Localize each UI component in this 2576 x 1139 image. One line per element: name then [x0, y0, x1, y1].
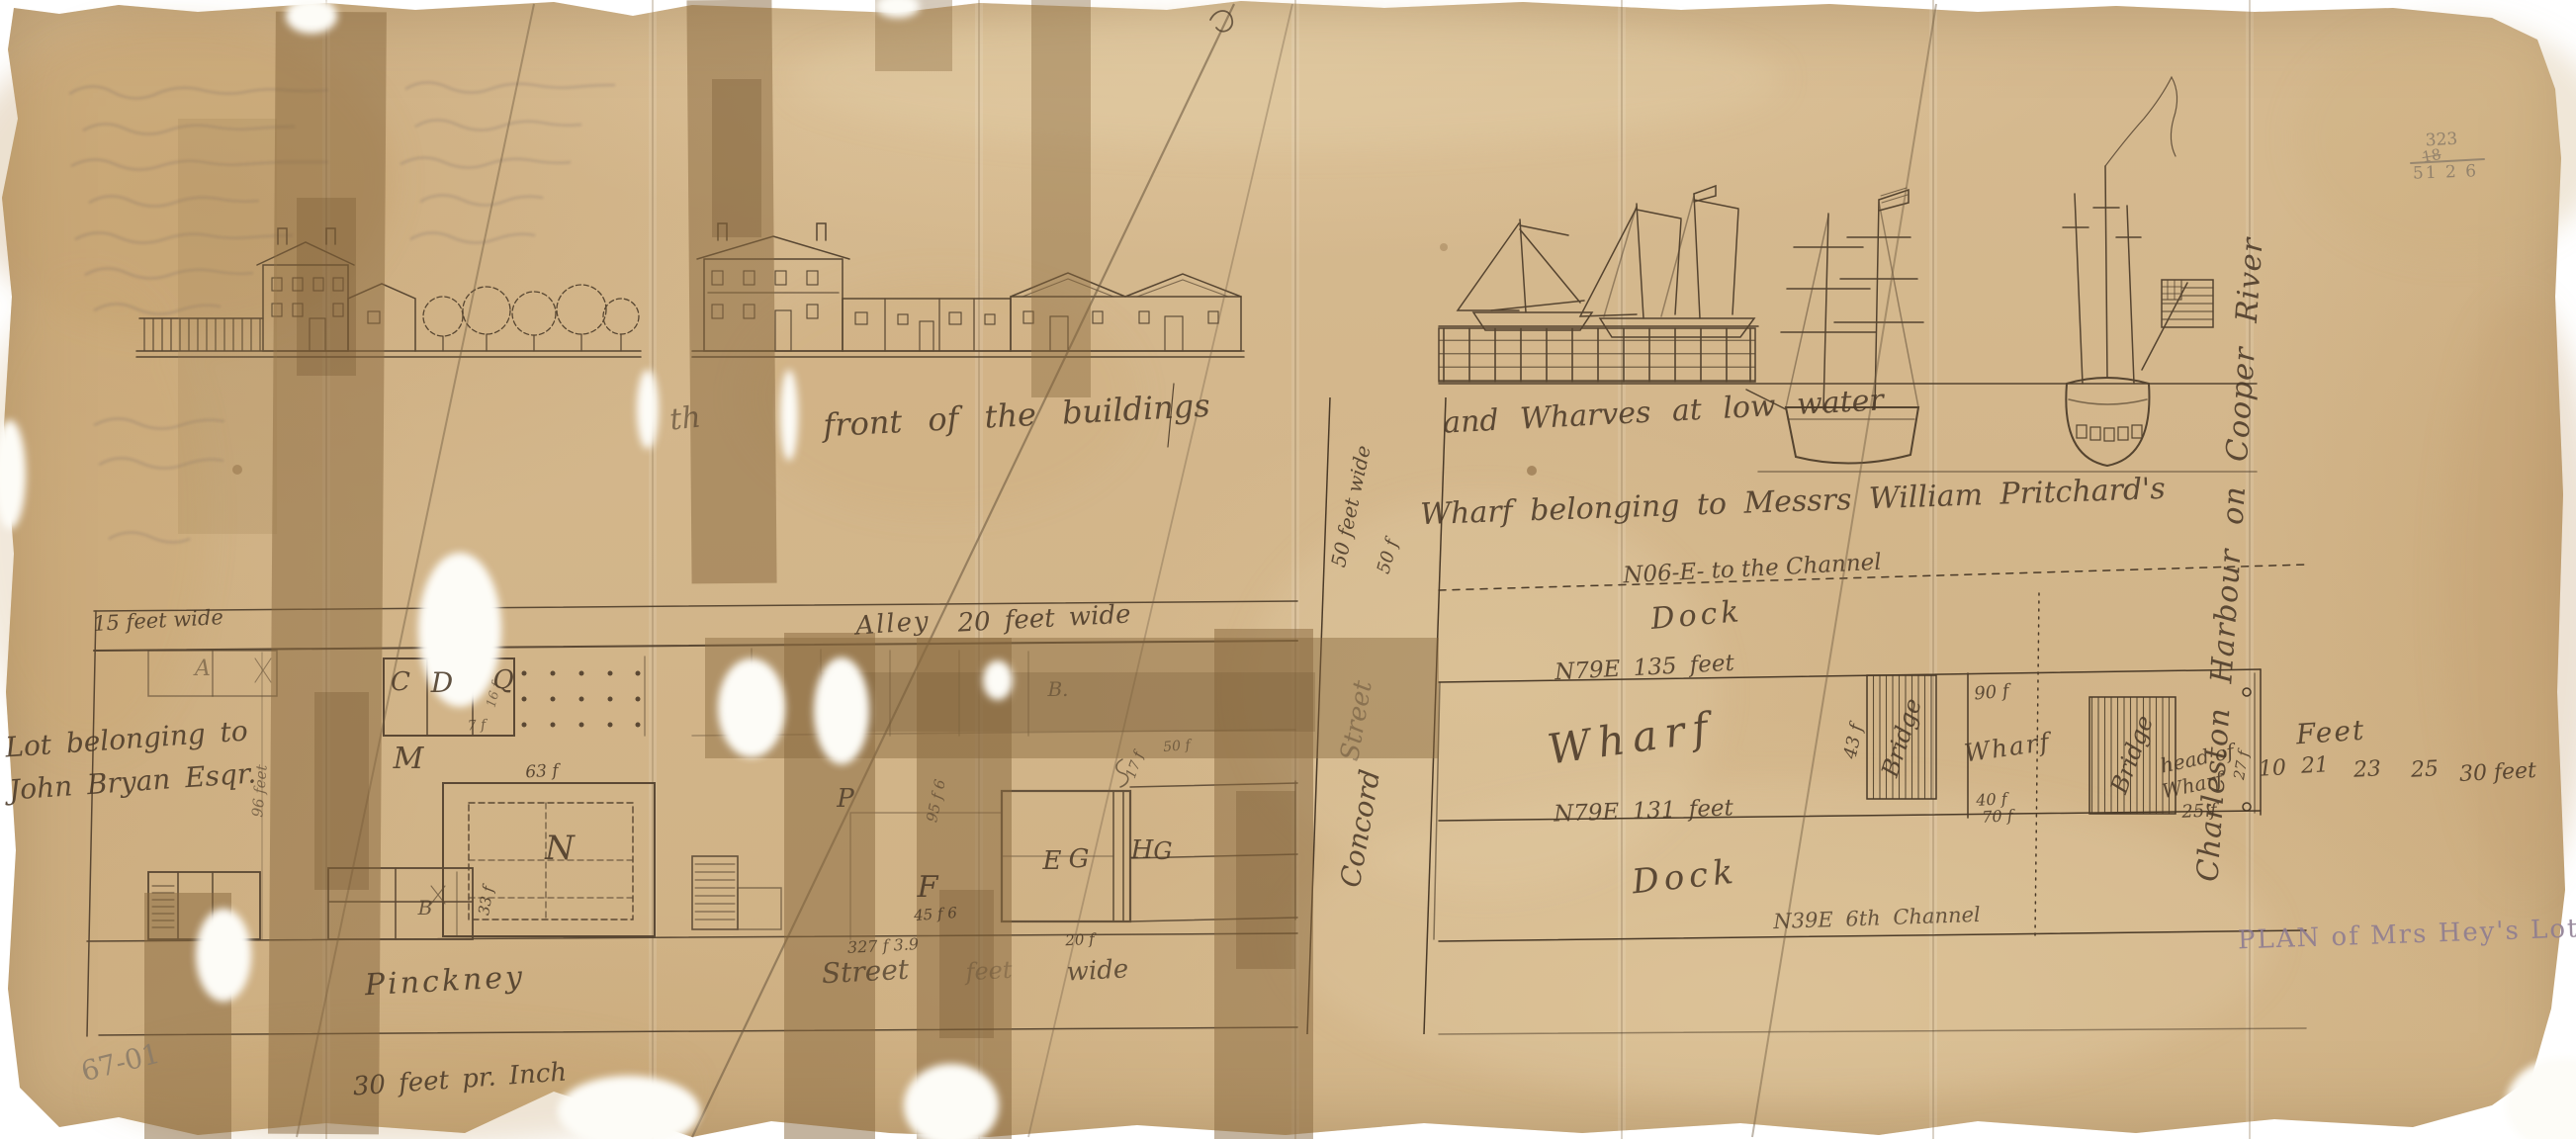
channel-bearing-upper: N06-E- to the Channel [1623, 552, 1882, 588]
scale-tick-21: 21 [2300, 754, 2329, 777]
wharf-label-2: Wharf [1963, 730, 2053, 766]
dim-20f: 20 f [1065, 932, 1095, 949]
dim-50f: 50 f [1375, 538, 1401, 576]
street-wide-word: wide [1066, 956, 1129, 985]
scanned-plan-document: thfront of the buildingsand Wharves at l… [0, 0, 2576, 1139]
room-letter-c: C [391, 669, 410, 695]
dim-43f: 43 f [1842, 723, 1867, 760]
room-letter-d: D [431, 669, 453, 697]
harbour-title: Charleston Harbour on Cooper River [2193, 236, 2267, 883]
dim-16f: 16 f [485, 681, 503, 709]
concord-street-word: Street [1337, 678, 1377, 762]
bridge-label-2: Bridge [2107, 713, 2158, 797]
dim-27f: 27 f [2232, 749, 2252, 781]
archive-number: 67-01 [78, 1040, 162, 1087]
concord-street-width: 50 feet wide [1328, 444, 1374, 569]
street-word: Street [821, 956, 910, 989]
alley-name: Alley [854, 608, 931, 639]
dim-327f: 327 f 3.9 [847, 936, 920, 956]
dim-7f: 7 f [467, 719, 486, 734]
elevation-caption: front of the buildings [823, 390, 1211, 441]
dock-label-upper: Dock [1649, 597, 1743, 635]
dim-45f6: 45 f 6 [914, 906, 958, 923]
dim-96f: 96 feet [250, 764, 270, 818]
sheet-title: PLAN of Mrs Hey's Lot , [2238, 916, 2576, 954]
wharf-boundary-lower: N79E 131 feet [1554, 797, 1733, 826]
map-scale-note: 30 feet pr. Inch [352, 1059, 568, 1099]
room-letter-g2: G [1153, 839, 1172, 863]
scale-tick-23: 23 [2353, 758, 2381, 781]
alley-width: 20 feet wide [957, 601, 1131, 636]
wharf-label-1: Wharf [1545, 706, 1718, 770]
room-letter-b: B [418, 898, 433, 918]
room-letter-p: P [837, 786, 854, 812]
lot-owner-line1: Lot belonging to [4, 717, 248, 761]
channel-bearing-lower: N39E 6th Channel [1773, 905, 1981, 932]
elevation-caption-fragment: th [668, 402, 702, 435]
dim-50f-2: 50 f [1163, 739, 1192, 754]
passage-width: 15 feet wide [93, 607, 224, 635]
room-letter-f: F [918, 873, 938, 903]
dim-63f: 63 f [525, 763, 559, 782]
bridge-label-1: Bridge [1878, 695, 1925, 779]
dim-33f: 33 f [477, 885, 496, 917]
lot-owner-line2: John Bryan Esqr. [8, 759, 257, 804]
room-letter-m: M [394, 745, 424, 774]
dock-label-lower: Dock [1631, 854, 1739, 899]
pencil-sum-line3: 51 2 6 [2413, 163, 2479, 182]
scale-title: Feet [2295, 717, 2366, 749]
dim-17f: 17 f [1124, 750, 1147, 781]
room-letter-n: N [545, 832, 575, 865]
scale-tick-25: 25 [2410, 758, 2439, 781]
wharf-owner-caption: Wharf belonging to Messrs William Pritch… [1420, 475, 2167, 530]
wharf-boundary-upper: N79E 135 feet [1554, 653, 1735, 684]
room-letter-b2: B. [1047, 679, 1068, 699]
scale-tick-10: 10 [2258, 757, 2286, 780]
scale-tick-30: 30 feet [2458, 760, 2536, 786]
handwritten-labels-layer: thfront of the buildingsand Wharves at l… [0, 0, 2576, 1139]
concord-street-name: Concord [1337, 767, 1384, 889]
dim-95f6: 95 f 6 [925, 778, 948, 824]
pinckney-street-name: Pinckney [364, 963, 525, 1001]
dim-90f: 90 f [1974, 682, 2010, 703]
wharves-caption: and Wharves at low water [1443, 386, 1885, 438]
room-letter-e: E [1043, 848, 1062, 874]
room-letter-a: A [195, 658, 211, 680]
dim-70f: 70 f [1982, 808, 2013, 826]
room-letter-h: H [1131, 837, 1154, 863]
street-width-obscured: feet [965, 958, 1013, 984]
room-letter-g: G [1069, 846, 1090, 872]
